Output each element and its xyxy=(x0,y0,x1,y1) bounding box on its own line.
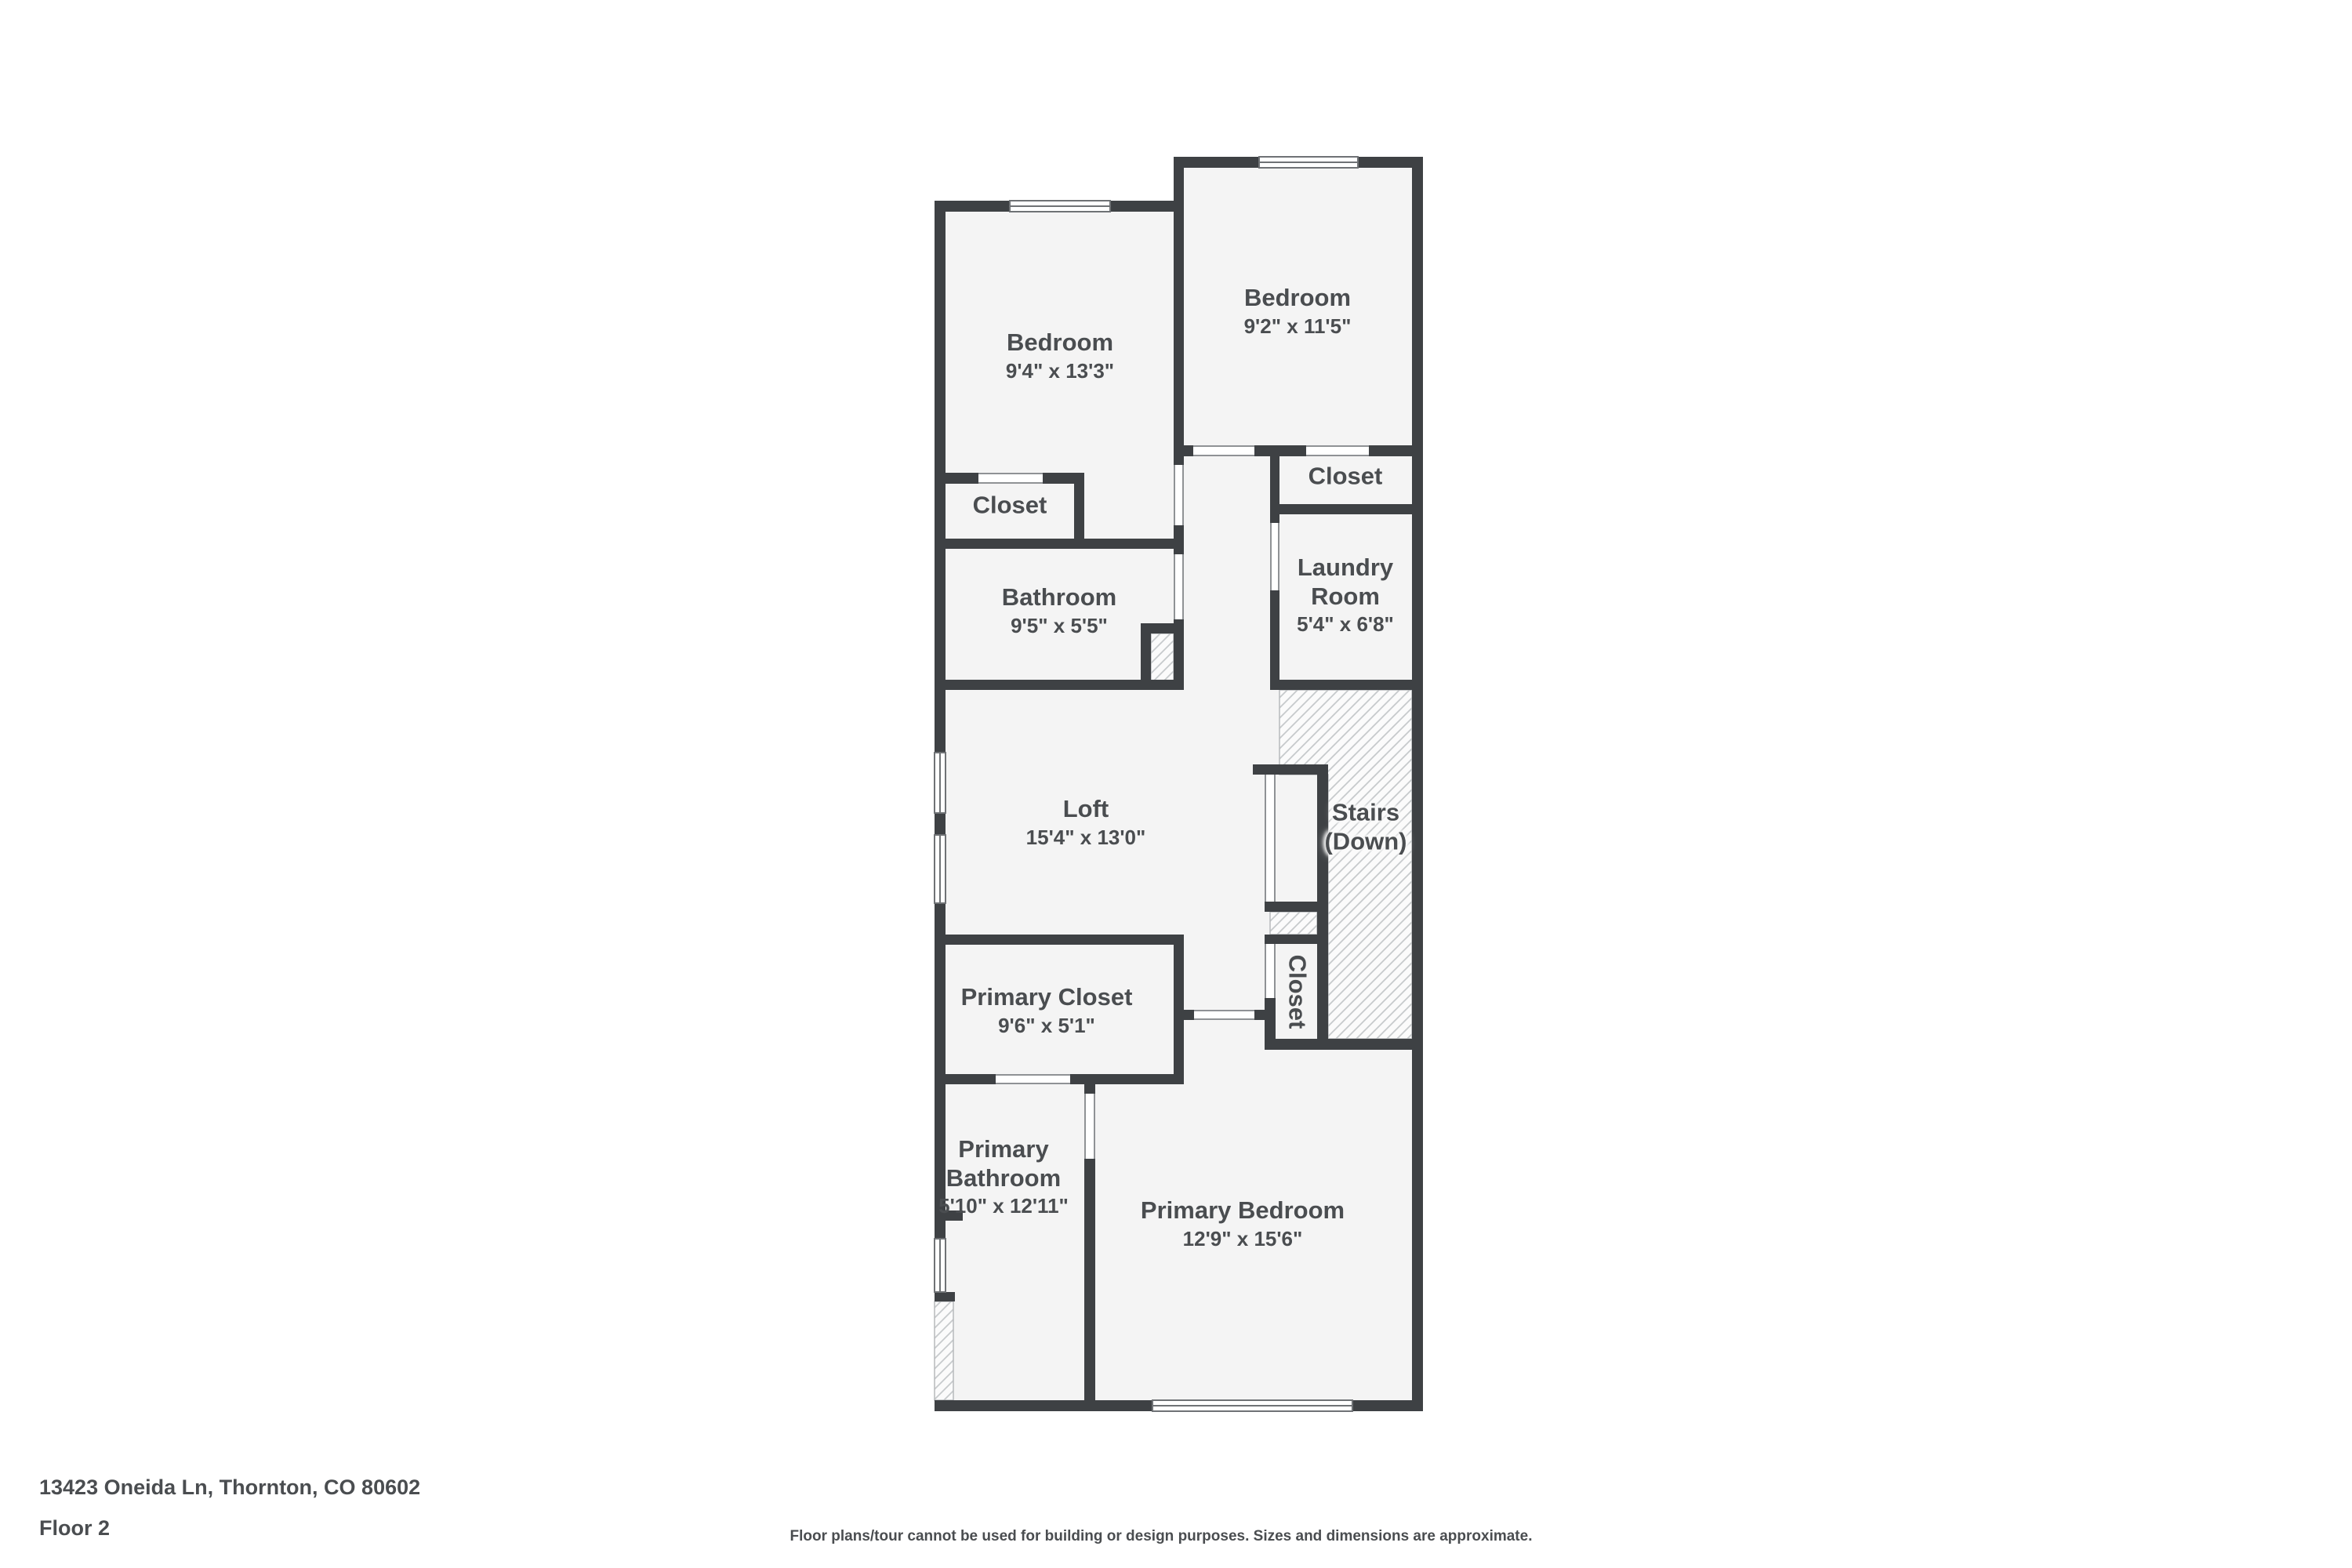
wall-laundry-bottom xyxy=(1270,680,1412,690)
wall-bathroom-bottom xyxy=(935,680,1184,690)
room-name-line2: Room xyxy=(1297,582,1394,611)
room-label-closet-right: Closet xyxy=(1308,463,1383,492)
wall-bath-chase-left xyxy=(1141,623,1151,681)
wall-stairs-bottom xyxy=(1265,1039,1423,1050)
window-primary-bedroom xyxy=(1152,1400,1352,1411)
door-bedroom-right xyxy=(1193,445,1254,456)
hatch-box-landing xyxy=(1270,912,1317,935)
wall-bedroom-right-bottom-a xyxy=(1184,445,1193,456)
room-label-closet-left: Closet xyxy=(973,492,1047,521)
wall-stub-above-chase xyxy=(935,1292,955,1301)
wall-primary-closet-right xyxy=(1174,935,1184,1084)
room-name-line2: (Down) xyxy=(1324,827,1406,856)
door-bedroom-left xyxy=(1174,465,1184,525)
window-loft-lower xyxy=(935,835,946,903)
room-dims: 9'2" x 11'5" xyxy=(1244,313,1352,340)
room-name: Closet xyxy=(1283,955,1312,1029)
door-primary-bedroom xyxy=(1194,1010,1254,1020)
wall-closet-laundry-divider xyxy=(1270,504,1412,514)
room-dims: 9'4" x 13'3" xyxy=(1006,358,1114,385)
room-name: Stairs xyxy=(1324,798,1406,827)
wall-primary-closet-bottom-b xyxy=(1070,1074,1184,1084)
wall-closet-left-top-a xyxy=(935,473,978,484)
room-name: Laundry xyxy=(1297,554,1394,583)
room-label-stairs: Stairs (Down) xyxy=(1324,798,1406,855)
wall-closet-left-top-b xyxy=(1043,473,1084,484)
room-label-primary-closet: Primary Closet 9'6" x 5'1" xyxy=(961,983,1133,1040)
room-label-bedroom-left: Bedroom 9'4" x 13'3" xyxy=(1006,328,1114,385)
wall-closet-left-right xyxy=(1074,473,1084,549)
door-bathroom xyxy=(1174,554,1184,619)
room-name-line2: Bathroom xyxy=(938,1163,1069,1192)
wall-primary-bedroom-entry-a xyxy=(1184,1010,1194,1020)
floor-label: Floor 2 xyxy=(39,1516,110,1541)
wall-exterior-right xyxy=(1412,157,1423,1411)
room-name: Bathroom xyxy=(1002,583,1116,612)
room-name: Closet xyxy=(1308,463,1383,492)
room-area-hallway xyxy=(1184,456,1270,1010)
window-bedroom-left xyxy=(1010,201,1110,212)
window-bedroom-right xyxy=(1259,157,1358,168)
window-primary-bathroom xyxy=(935,1239,946,1292)
room-label-primary-bedroom: Primary Bedroom 12'9" x 15'6" xyxy=(1141,1196,1345,1253)
door-laundry xyxy=(1270,523,1279,590)
room-name: Closet xyxy=(973,492,1047,521)
disclaimer-text: Floor plans/tour cannot be used for buil… xyxy=(790,1528,1533,1545)
room-label-closet-stairs: Closet xyxy=(1283,955,1312,1029)
floor-plan-page: Bedroom 9'4" x 13'3" Bedroom 9'2" x 11'5… xyxy=(0,0,2352,1568)
room-area-stairs xyxy=(1328,690,1412,1039)
wall-primary-divider-stub xyxy=(1084,1084,1095,1094)
property-address: 13423 Oneida Ln, Thornton, CO 80602 xyxy=(39,1475,420,1500)
room-dims: 5'10" x 12'11" xyxy=(938,1192,1069,1220)
wall-primary-divider xyxy=(1084,1159,1095,1400)
room-area-primary-bathroom xyxy=(946,1084,1084,1400)
room-name: Primary Bedroom xyxy=(1141,1196,1345,1225)
room-name: Bedroom xyxy=(1006,328,1114,358)
room-label-bathroom: Bathroom 9'5" x 5'5" xyxy=(1002,583,1116,640)
door-closet-right xyxy=(1306,445,1369,456)
wall-primary-closet-bottom-a xyxy=(935,1074,996,1084)
wall-bedroom-right-bottom-c xyxy=(1369,445,1414,456)
room-label-laundry: Laundry Room 5'4" x 6'8" xyxy=(1297,554,1394,638)
room-label-primary-bathroom: Primary Bathroom 5'10" x 12'11" xyxy=(938,1135,1069,1220)
wall-stairs-top xyxy=(1253,764,1328,775)
room-label-loft: Loft 15'4" x 13'0" xyxy=(1026,795,1146,851)
wall-landing-bottom xyxy=(1265,902,1328,912)
room-dims: 5'4" x 6'8" xyxy=(1297,611,1394,638)
wall-bathroom-top xyxy=(935,539,1184,549)
door-primary-bathroom xyxy=(1084,1094,1095,1159)
wall-primary-bedroom-entry-b xyxy=(1254,1010,1276,1020)
room-name: Primary xyxy=(938,1135,1069,1164)
wall-closet-stairs-top xyxy=(1265,935,1328,944)
wall-laundry-left xyxy=(1270,590,1279,690)
room-label-bedroom-right: Bedroom 9'2" x 11'5" xyxy=(1244,284,1352,340)
room-dims: 9'5" x 5'5" xyxy=(1002,612,1116,640)
door-primary-closet xyxy=(996,1074,1070,1084)
room-dims: 15'4" x 13'0" xyxy=(1026,824,1146,851)
wall-loft-bottom xyxy=(935,935,1184,945)
room-name: Bedroom xyxy=(1244,284,1352,313)
window-loft-upper xyxy=(935,753,946,813)
wall-bedroom-right-bottom-b xyxy=(1254,445,1306,456)
room-dims: 12'9" x 15'6" xyxy=(1141,1225,1345,1253)
room-name: Loft xyxy=(1026,795,1146,824)
door-closet-stairs xyxy=(1265,944,1276,998)
room-dims: 9'6" x 5'1" xyxy=(961,1012,1133,1040)
door-closet-left xyxy=(978,473,1043,484)
wall-bedrooms-divider xyxy=(1174,212,1184,465)
opening-stair-landing xyxy=(1265,775,1276,902)
room-name: Primary Closet xyxy=(961,983,1133,1012)
floor-plan-drawing xyxy=(0,0,2352,1568)
